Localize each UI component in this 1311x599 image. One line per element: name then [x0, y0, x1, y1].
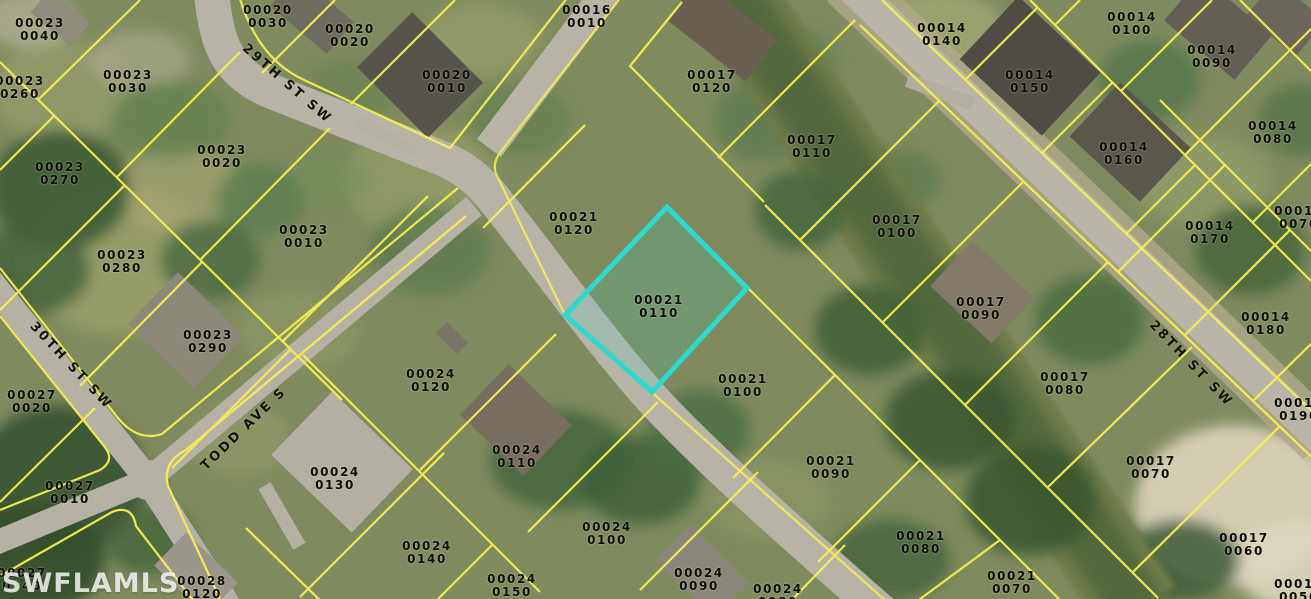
street-label: 28TH ST SW [1146, 318, 1236, 410]
parcel-label: 000160010 [562, 4, 612, 30]
parcel-label: 000140180 [1241, 311, 1291, 337]
parcel-label: 000230290 [183, 329, 233, 355]
parcel-label: 000230270 [35, 161, 85, 187]
parcel-label: 000170090 [956, 296, 1006, 322]
parcel-label: 000240120 [406, 368, 456, 394]
parcel-label: 000170120 [687, 69, 737, 95]
parcel-label: 000170100 [872, 214, 922, 240]
parcel-label: 000230030 [103, 69, 153, 95]
street-label: 29TH ST SW [239, 41, 335, 127]
parcel-label: 000210080 [896, 530, 946, 556]
parcel-label: 000200010 [422, 69, 472, 95]
parcel-label: 000240150 [487, 573, 537, 599]
aerial-parcel-map[interactable]: 0002300400002000300002000200001600100001… [0, 0, 1311, 599]
parcel-label: 000210120 [549, 211, 599, 237]
street-label: TODD AVE S [198, 384, 290, 473]
parcel-label: 000140190 [1274, 397, 1311, 423]
parcel-label: 000230260 [0, 75, 45, 101]
parcel-label: 000240130 [310, 466, 360, 492]
parcel-label: 000210090 [806, 455, 856, 481]
parcel-label: 000140080 [1248, 120, 1298, 146]
parcel-label: 000240140 [402, 540, 452, 566]
parcel-label: 000200030 [243, 4, 293, 30]
parcel-label: 000200020 [325, 23, 375, 49]
parcel-label: 000170110 [787, 134, 837, 160]
parcel-label: 000230020 [197, 144, 247, 170]
parcel-label: 000140100 [1107, 11, 1157, 37]
parcel-label: 000210110 [634, 294, 684, 320]
parcel-label: 000240090 [674, 567, 724, 593]
parcel-label: 000140070 [1274, 205, 1311, 231]
parcel-label: 000140170 [1185, 220, 1235, 246]
parcel-label: 000240110 [492, 444, 542, 470]
parcel-label: 000240080 [753, 583, 803, 599]
mls-watermark: SWFLAMLS [2, 568, 179, 599]
parcel-label: 000140140 [917, 22, 967, 48]
parcel-label: 000140160 [1099, 141, 1149, 167]
parcel-label: 000270010 [45, 480, 95, 506]
parcel-label: 000230280 [97, 249, 147, 275]
parcel-label: 000140150 [1005, 69, 1055, 95]
parcel-label: 000210100 [718, 373, 768, 399]
parcel-label: 000230040 [15, 17, 65, 43]
parcel-label: 000270020 [7, 389, 57, 415]
parcel-label: 000170070 [1126, 455, 1176, 481]
parcel-label: 000230010 [279, 224, 329, 250]
parcel-label: 000140090 [1187, 44, 1237, 70]
parcel-label: 000170060 [1219, 532, 1269, 558]
parcel-label: 000280120 [177, 575, 227, 599]
parcel-label: 000170050 [1274, 578, 1311, 599]
map-labels-layer: 0002300400002000300002000200001600100001… [0, 0, 1311, 599]
parcel-label: 000210070 [987, 570, 1037, 596]
parcel-label: 000170080 [1040, 371, 1090, 397]
parcel-label: 000240100 [582, 521, 632, 547]
